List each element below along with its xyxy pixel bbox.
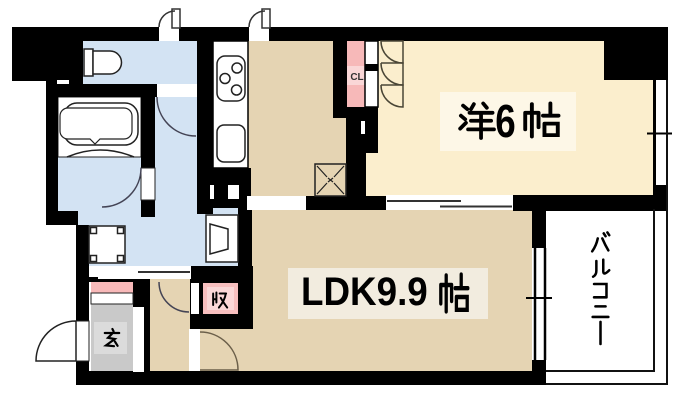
svg-text:6: 6 — [495, 95, 515, 147]
svg-text:LDK9.9: LDK9.9 — [301, 270, 428, 315]
svg-text:CL: CL — [350, 72, 363, 83]
